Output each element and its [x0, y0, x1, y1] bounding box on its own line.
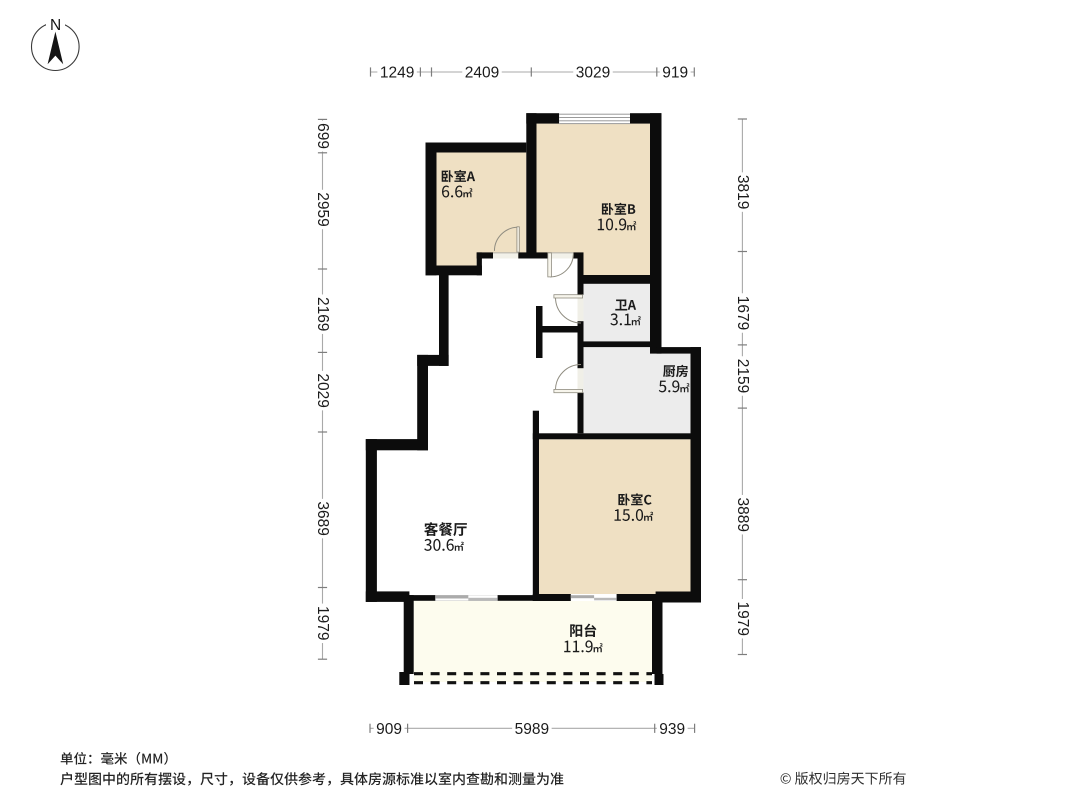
svg-text:5989: 5989 [515, 721, 549, 738]
svg-text:919: 919 [662, 65, 688, 82]
svg-text:939: 939 [659, 721, 685, 738]
svg-text:1979: 1979 [734, 601, 751, 635]
svg-text:2409: 2409 [465, 65, 499, 82]
svg-text:3889: 3889 [734, 497, 751, 531]
svg-text:2029: 2029 [314, 373, 331, 407]
svg-text:3689: 3689 [314, 501, 331, 535]
svg-text:3029: 3029 [576, 65, 610, 82]
svg-text:2169: 2169 [314, 297, 331, 331]
svg-text:N: N [50, 17, 61, 34]
svg-text:909: 909 [376, 721, 402, 738]
svg-text:1979: 1979 [314, 606, 331, 640]
svg-text:1679: 1679 [734, 296, 751, 330]
svg-text:1249: 1249 [380, 65, 414, 82]
svg-text:3819: 3819 [734, 175, 751, 209]
svg-text:699: 699 [314, 123, 331, 149]
svg-text:2159: 2159 [734, 359, 751, 393]
svg-text:2959: 2959 [314, 192, 331, 226]
